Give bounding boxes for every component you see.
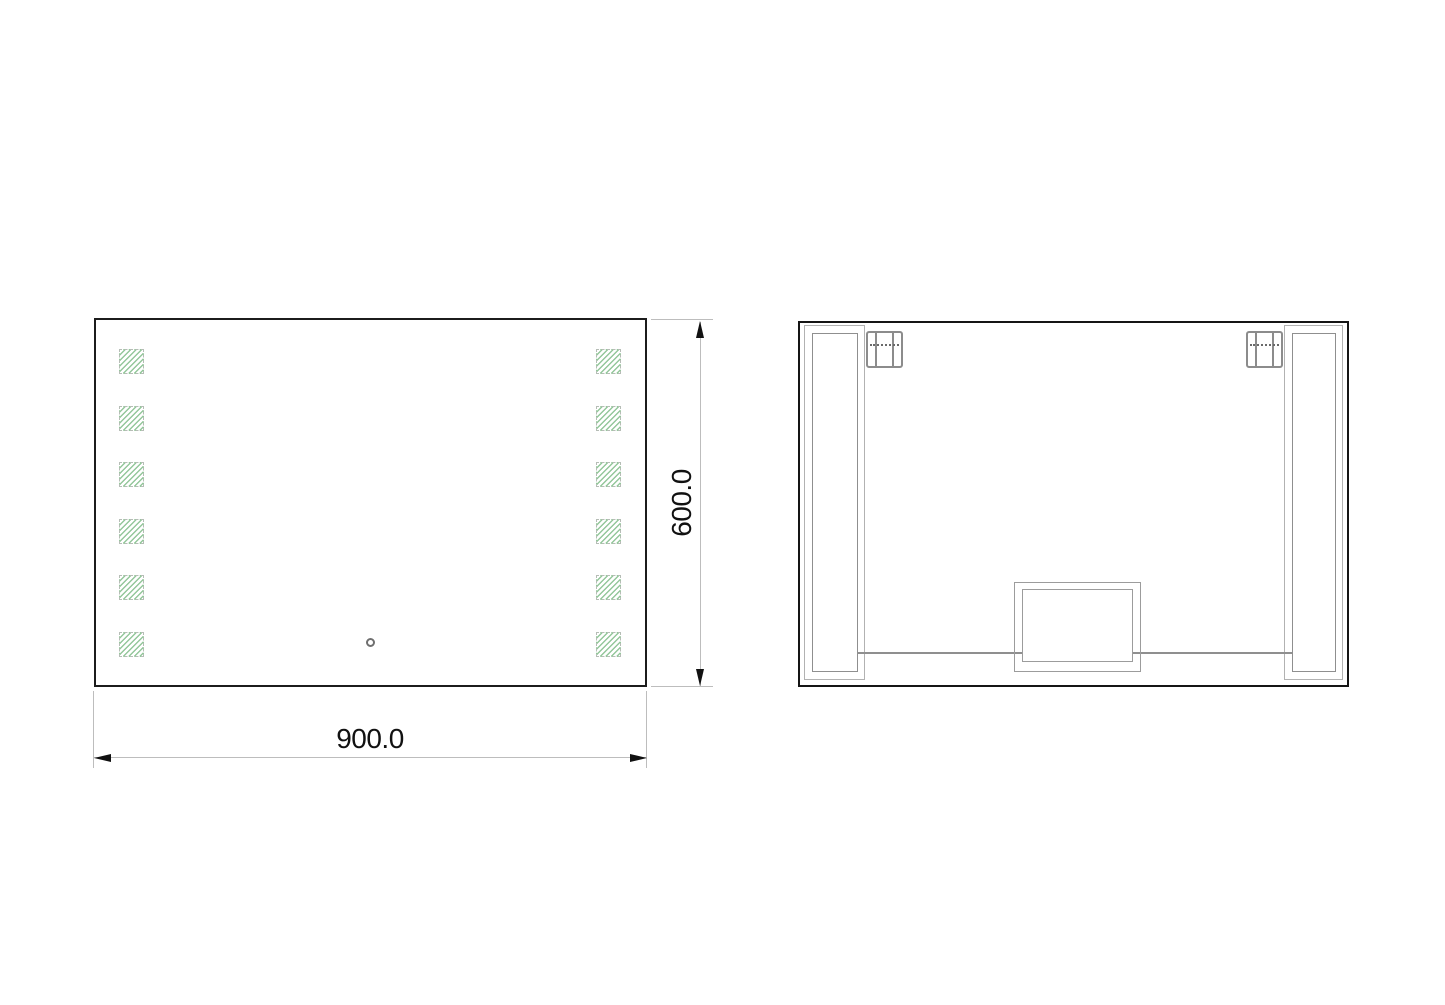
- height-dimension-label: 600.0: [669, 453, 695, 553]
- height-extension-line-top: [651, 319, 713, 320]
- mirror-front-outline: [94, 318, 647, 687]
- led-pad: [119, 575, 144, 600]
- hanging-clip-right: [1246, 331, 1283, 368]
- clip-slot-line: [892, 333, 894, 366]
- drawing-canvas: 600.0 900.0: [0, 0, 1445, 1005]
- led-pad: [119, 632, 144, 657]
- led-pad: [119, 406, 144, 431]
- hanging-clip-left: [866, 331, 903, 368]
- width-dim-arrow-right: [630, 754, 647, 762]
- height-dim-arrow-top: [696, 321, 704, 338]
- height-extension-line-bottom: [651, 686, 713, 687]
- width-dimension-label: 900.0: [270, 726, 470, 752]
- led-pad: [596, 519, 621, 544]
- led-pad: [596, 406, 621, 431]
- led-pad-column-right: [596, 349, 621, 657]
- junction-box-inner: [1022, 589, 1133, 662]
- height-dim-arrow-bottom: [696, 669, 704, 686]
- touch-sensor-circle: [366, 638, 375, 647]
- width-dim-arrow-left: [94, 754, 111, 762]
- hanging-rail-right-inner: [1292, 333, 1336, 672]
- led-pad: [596, 575, 621, 600]
- clip-dotted-line: [870, 344, 899, 346]
- width-dimension-line: [94, 757, 647, 758]
- clip-slot-line: [875, 333, 877, 366]
- clip-slot-line: [1255, 333, 1257, 366]
- clip-dotted-line: [1250, 344, 1279, 346]
- led-pad-column-left: [119, 349, 144, 657]
- led-pad: [119, 349, 144, 374]
- clip-slot-line: [1272, 333, 1274, 366]
- height-dimension-line: [700, 322, 701, 686]
- hanging-rail-left-inner: [812, 333, 858, 672]
- led-pad: [119, 519, 144, 544]
- led-pad: [596, 349, 621, 374]
- led-pad: [596, 632, 621, 657]
- led-pad: [596, 462, 621, 487]
- led-pad: [119, 462, 144, 487]
